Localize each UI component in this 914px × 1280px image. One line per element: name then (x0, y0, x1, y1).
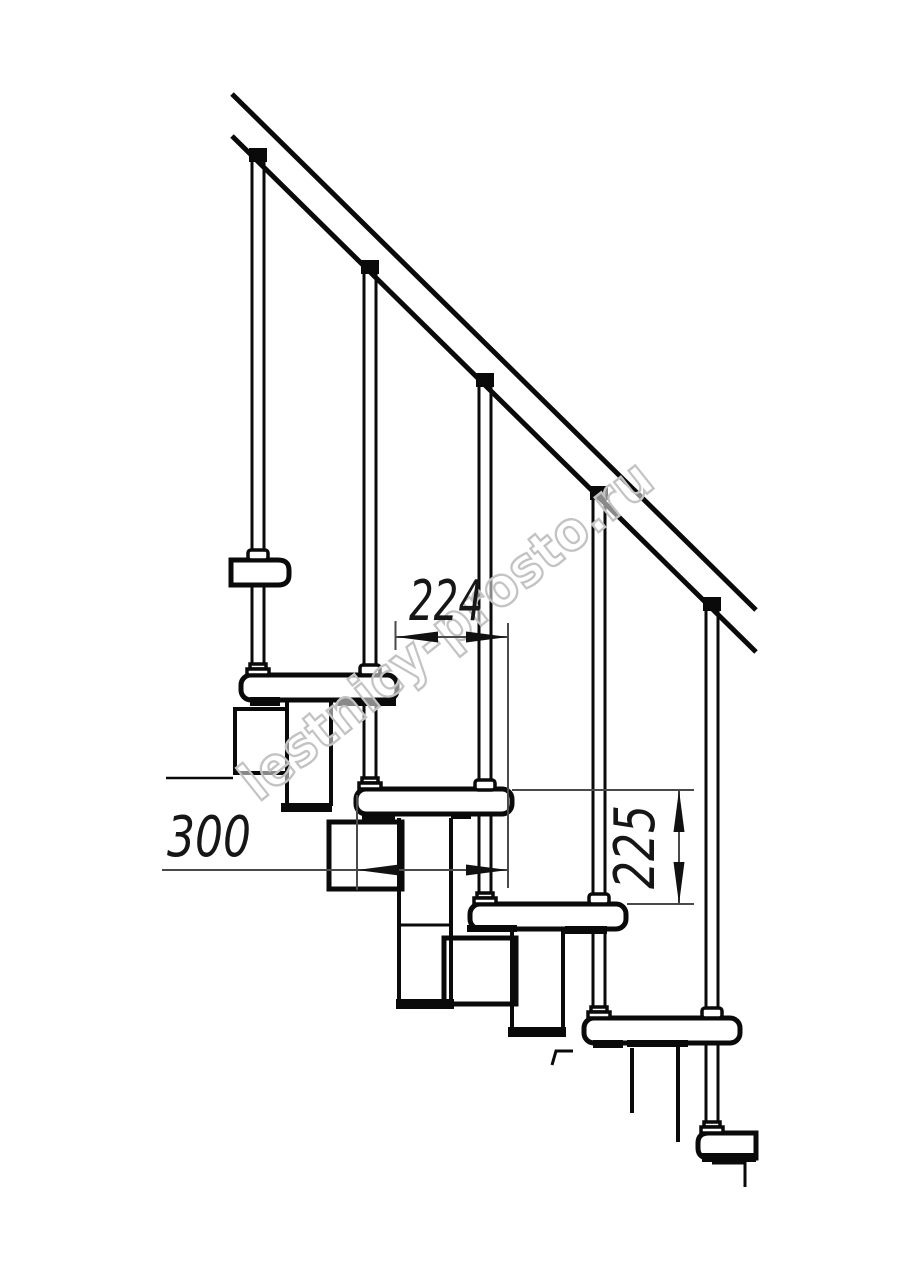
tread-3-plate-rear (467, 925, 517, 932)
tread-4-plate-front (627, 1040, 688, 1047)
stringer-cut-hook-5 (712, 1163, 745, 1187)
tread-2-plate-rear (362, 812, 395, 820)
stringer-cut-hook-3 (552, 1051, 573, 1065)
staircase-drawing: lestnicy-prosto.ru 224 300 225 (0, 0, 914, 1280)
baluster-4-collar (589, 894, 609, 904)
handrail-top-edge (232, 94, 756, 610)
dim225-arrow-up (674, 790, 685, 832)
dim300-arrow-left (357, 865, 399, 876)
baluster-5 (703, 597, 721, 1127)
tread-4 (584, 1018, 740, 1043)
stringer-strut-3-base (508, 1027, 566, 1037)
tread-2 (356, 789, 512, 814)
stringer-strut-1-base (281, 803, 332, 812)
tread-0-partial (231, 560, 289, 585)
tread-1-plate-rear (250, 697, 280, 706)
tread-5-plate (702, 1153, 756, 1162)
dim224-label: 224 (409, 569, 483, 634)
stringer-module-3 (444, 938, 516, 1004)
dim300-arrow-right (466, 865, 508, 876)
tread-3-plate-front (565, 926, 607, 934)
baluster-1 (249, 148, 267, 669)
drawing-canvas: lestnicy-prosto.ru 224 300 225 (0, 0, 914, 1280)
dim225-arrow-down (674, 862, 685, 904)
baluster-1-foot (247, 664, 269, 675)
dimension-step-rise: 225 (512, 790, 694, 904)
baluster-3-foot (474, 893, 496, 904)
baluster-1-collar (248, 550, 268, 560)
dim225-label: 225 (603, 805, 668, 889)
baluster-5-foot (701, 1122, 723, 1133)
baluster-4-foot (588, 1007, 610, 1018)
stringer-module-2 (329, 822, 402, 889)
baluster-5-collar (702, 1008, 722, 1018)
tread-4-plate-rear (593, 1040, 623, 1048)
baluster-3-collar (475, 780, 495, 790)
dim300-label: 300 (167, 805, 251, 870)
baluster-2-foot (359, 778, 381, 789)
tread-2-plate-front (451, 812, 471, 819)
